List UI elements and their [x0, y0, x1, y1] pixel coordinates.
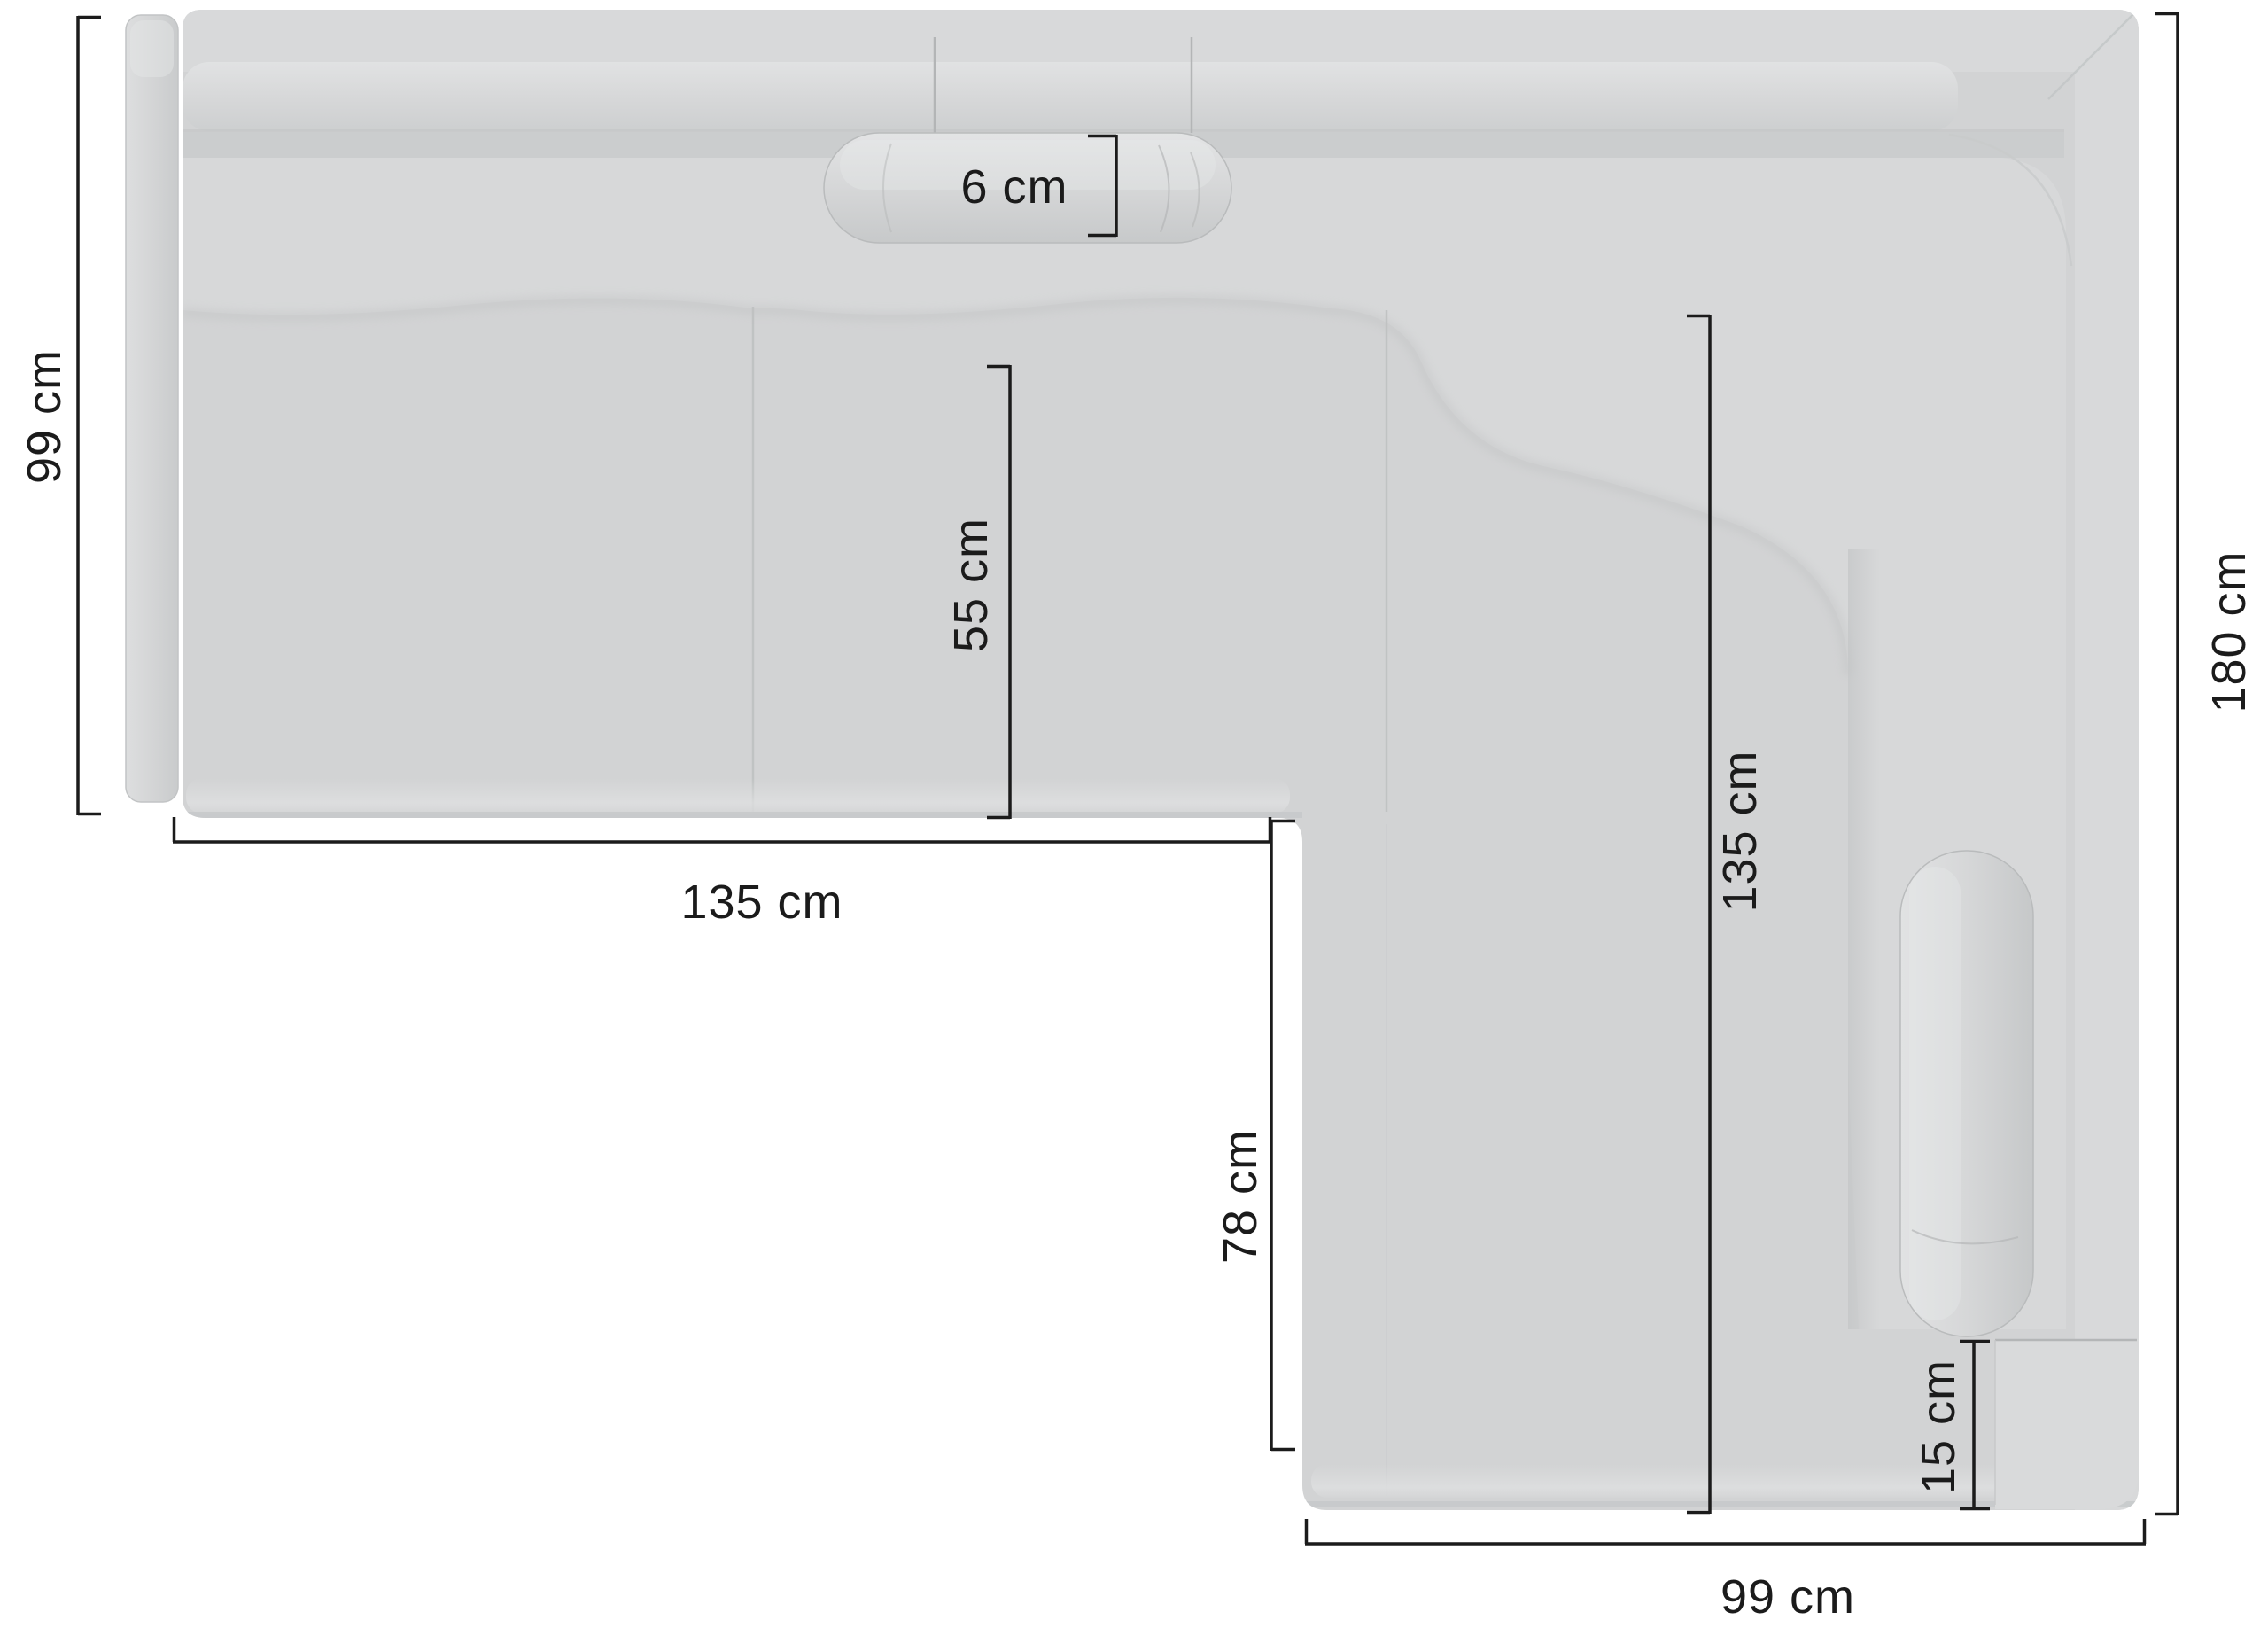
- dim-armrest-label: 15 cm: [1912, 1359, 1965, 1494]
- sofa-dimension-diagram: 99 cm 6 cm 55 cm 135 cm 78 c: [0, 0, 2268, 1651]
- dim-depth-left-label: 99 cm: [18, 349, 71, 484]
- dim-seat-depth-label: 55 cm: [944, 518, 998, 652]
- diagram-canvas: 99 cm 6 cm 55 cm 135 cm 78 c: [0, 0, 2268, 1651]
- sofa-headrest-seam: [183, 129, 2064, 132]
- sofa-right-armrest-block: [1995, 1340, 2139, 1509]
- dim-total-depth: 180 cm: [2155, 12, 2256, 1515]
- dim-body-width-label: 135 cm: [680, 876, 843, 929]
- dim-total-depth-label: 180 cm: [2202, 550, 2256, 713]
- sofa-left-armrest: [126, 15, 178, 802]
- dim-chaise-length-label: 135 cm: [1713, 750, 1767, 912]
- dim-chaise-width-label: 99 cm: [1720, 1570, 1855, 1624]
- sofa-top-view: [126, 10, 2139, 1510]
- sofa-seat-front-highlight: [186, 778, 1290, 814]
- dim-bolster-label: 6 cm: [960, 160, 1068, 214]
- dim-chaise-width: 99 cm: [1305, 1519, 2146, 1624]
- sofa-back-rail-right: [2075, 10, 2139, 1510]
- bolster-pillow-vertical-highlight: [1909, 867, 1961, 1320]
- dim-chaise-side-label: 78 cm: [1214, 1129, 1267, 1264]
- sofa-left-armrest-highlight: [130, 20, 174, 77]
- sofa-seat-front-edge: [183, 812, 1302, 818]
- sofa-right-backrest-inner-shade: [1848, 549, 1880, 1329]
- dim-chaise-side: 78 cm: [1214, 820, 1295, 1451]
- sofa-headrest-roll: [183, 62, 1958, 131]
- dim-body-width: 135 cm: [173, 817, 1271, 929]
- dim-depth-left: 99 cm: [18, 16, 101, 815]
